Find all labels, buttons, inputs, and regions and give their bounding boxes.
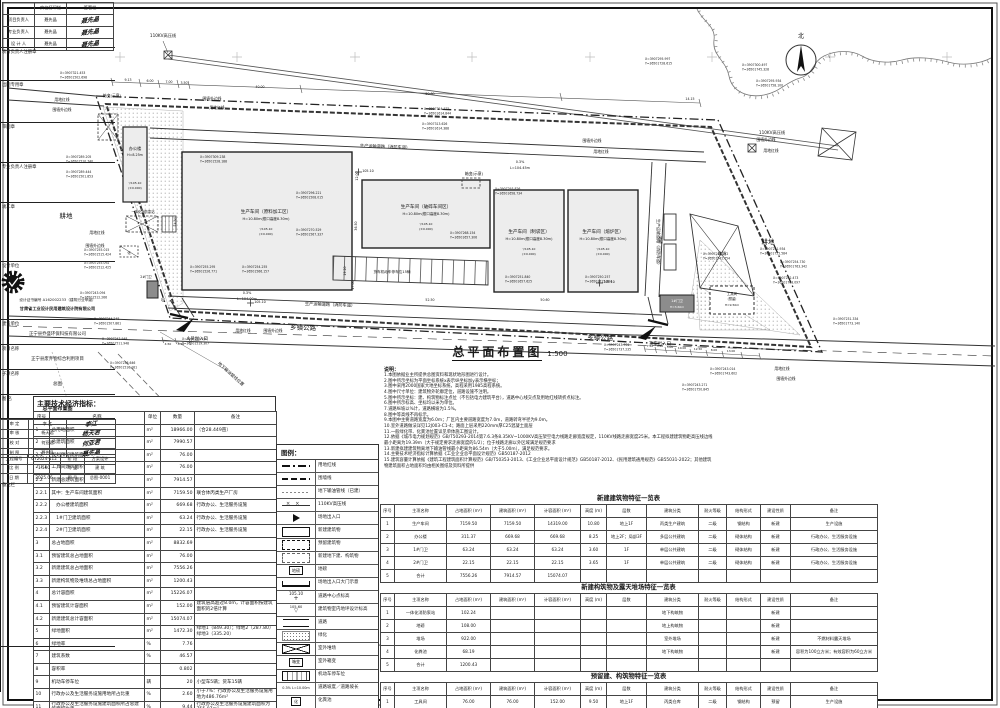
table-row: 31#门卫63.2463.2463.243.601F单层公共建筑二级砌体结构新建…: [381, 544, 878, 557]
legend-label: 场地出入口大门示意: [316, 581, 378, 586]
cell: [727, 570, 761, 583]
cell: 8832.69: [161, 537, 195, 550]
cell: 669.68: [535, 531, 581, 544]
column-header: 备注: [195, 412, 277, 425]
plan-label: 5.00: [667, 345, 674, 349]
cell: 地上2F；局部3F: [607, 531, 647, 544]
drawing-sheet: 耕地耕地乡镇公路乡镇公路生产车间（原料加工区）H=10.80m(檐口高度8.30…: [0, 0, 1000, 708]
design-institute-logo: [0, 269, 26, 295]
column-header: 高度 (m): [581, 683, 607, 696]
plan-label: H=10.80m(檐口高度8.30m): [506, 236, 554, 241]
cell: [581, 570, 607, 583]
cell: 新建: [761, 633, 791, 646]
cell: 3: [381, 544, 395, 557]
signature: 何亚君: [82, 439, 101, 448]
cell: 11: [34, 701, 50, 708]
sheet-name: 总平面布置图: [0, 405, 115, 412]
cell: [491, 646, 535, 659]
cell: m²: [145, 437, 161, 450]
sym-box-text-icon: 箱变: [289, 658, 303, 667]
coordinate-label: Y=36501614.388: [422, 127, 449, 131]
stamp-box-label: 项目负责人注册章: [2, 49, 36, 55]
sign-role: 项目负责人: [3, 15, 35, 27]
cell: [791, 659, 878, 672]
cell: m²: [145, 588, 161, 601]
column-header: 备注: [791, 505, 878, 518]
cell: 15226.07: [161, 588, 195, 601]
cell: 地下构筑物: [647, 646, 699, 659]
sign-header: 实名打印栏: [35, 3, 67, 15]
scale-value: 1:500: [28, 464, 61, 474]
plan-label: 8.00: [711, 348, 718, 352]
table-header-row: 序号主项名称占地面积 (m²)建筑面积 (m²)计容面积 (m²)高度 (m)层…: [381, 683, 878, 696]
coordinate-label: X=3907270.529: [296, 228, 321, 232]
plan-label: (±0.000): [419, 227, 432, 231]
column-header: 建筑面积 (m²): [491, 505, 535, 518]
plan-label: ▽105.10: [260, 227, 273, 231]
cell: m²: [145, 525, 161, 538]
cell: 102.24: [447, 607, 491, 620]
column-header: 建筑分类: [647, 683, 699, 696]
cell: [699, 646, 727, 659]
column-header: 高度 (m): [581, 505, 607, 518]
coordinate-label: X=3907254.255: [242, 265, 267, 269]
legend-item: 新建地下建、构筑物: [277, 552, 378, 565]
legend-symbol-icon: [277, 552, 316, 564]
legend-item: 机动车停车位: [277, 670, 378, 683]
column-header: 主项名称: [395, 594, 447, 607]
plan-label: 耕地: [762, 237, 776, 246]
coordinate-label: X=3907296.221: [296, 191, 321, 195]
cell: [761, 659, 791, 672]
column-header: 建筑分类: [647, 505, 699, 518]
note-line: 12.依据《城市电力规划规范》GB/T50293-2014第7.6.3条8.35…: [384, 435, 713, 446]
plan-label: 工具间: [727, 291, 738, 296]
cell: 1200.43: [161, 575, 195, 588]
sym-green-icon: [282, 631, 310, 641]
cell: 辆: [145, 676, 161, 689]
cell: 22.15: [447, 557, 491, 570]
cell: 建筑层高超过8.0m，计容面积按建筑面积的2倍计算: [195, 600, 277, 613]
field-label: 图 名: [2, 396, 12, 402]
cell: 7914.57: [161, 474, 195, 487]
legend-panel: 图例： 用地红线围墙线地下输油管线（已建）110KV高压线场地出入口新建建筑物预…: [276, 444, 379, 708]
plan-label: 3.50: [180, 81, 187, 85]
coordinate-label: Y=36501758.100: [756, 84, 783, 88]
plan-label: 地磅: [658, 236, 663, 244]
plan-label: 一体化消防泵站: [131, 209, 155, 214]
cell: 联合体丙类生产厂房: [195, 487, 277, 500]
coordinate-label: X=3907243.014: [710, 367, 735, 371]
plan-label: L=104.45m: [510, 166, 531, 170]
legend-symbol-icon: [277, 539, 316, 551]
cell: [195, 651, 277, 664]
field-label: 子项名称: [2, 371, 19, 377]
column-header: 耐火等级: [699, 594, 727, 607]
cell: 行政办公、生活服务设施: [195, 500, 277, 513]
cell: 1: [381, 696, 395, 708]
cell: [607, 607, 647, 620]
sym-rect-dashed-icon: [282, 540, 310, 550]
column-header: 层数: [607, 594, 647, 607]
sym-slope-icon: 0.3% L=10.00m: [282, 687, 309, 691]
signature: 聂先晶: [81, 16, 100, 25]
cell: 3.60: [581, 544, 607, 557]
signature-table: 实名打印栏 签署栏 项目负责人 聂先晶 聂先晶 专业负责人 聂先晶 聂先晶 设 …: [2, 2, 114, 51]
plan-label: (±0.000): [259, 232, 272, 236]
cell: 7.76: [161, 638, 195, 651]
cell: 砌体结构: [727, 531, 761, 544]
feature-table: 序号主项名称占地面积 (m²)建筑面积 (m²)计容面积 (m²)高度 (m)层…: [380, 682, 878, 708]
cell: [491, 633, 535, 646]
table-row: 11行政办公及生活服务设施建筑面积所占总建筑面积比重%9.44行政办公及生活服务…: [34, 701, 277, 708]
coordinate-label: X=3907314.122: [424, 107, 449, 111]
plan-label: 办公楼: [129, 145, 142, 152]
plan-label: （预留）: [726, 296, 739, 301]
legend-item: 0.3% L=10.00m道路坡度／道路坡长: [277, 683, 378, 696]
plan-label: 110KV高压线: [150, 32, 177, 39]
cell: 地上1F: [607, 518, 647, 531]
plan-label: 40.00: [255, 85, 264, 89]
cell: 小型车5辆；货车15辆: [195, 676, 277, 689]
cell: 15074.07: [161, 613, 195, 626]
cell: 22.15: [161, 525, 195, 538]
cell: 108.00: [447, 620, 491, 633]
coordinate-label: X=3907295.934: [756, 79, 781, 83]
cell: 行政办公及生活服务设施建筑面积为755.07m²: [195, 701, 277, 708]
sym-road-icon: [283, 619, 309, 627]
sym-box-text-icon: 地磅: [289, 566, 303, 575]
coordinate-label: X=3907300.497: [742, 63, 767, 67]
cell: 63.24: [535, 544, 581, 557]
plan-label: 2#门卫: [140, 274, 152, 279]
signature: 聂先晶: [81, 28, 100, 37]
coordinate-label: Y=36501566.157: [242, 270, 269, 274]
cell: [791, 620, 878, 633]
cell: [699, 633, 727, 646]
cell: 76.00: [491, 696, 535, 708]
plan-label: H=8.25m: [127, 153, 143, 157]
cell: [195, 449, 277, 462]
column-header: 序号: [381, 594, 395, 607]
legend-label: 室外堆场: [316, 647, 378, 652]
cell: 22.15: [491, 557, 535, 570]
cell: [727, 659, 761, 672]
column-header: 建设性质: [761, 505, 791, 518]
cell: 砌体结构: [727, 557, 761, 570]
cell: [195, 588, 277, 601]
cell: 4: [381, 646, 395, 659]
cell: 二级: [699, 518, 727, 531]
cell: 丙类生产建筑: [647, 518, 699, 531]
cell: 地上1F: [607, 696, 647, 708]
cell: 多层公共建筑: [647, 531, 699, 544]
cell: [581, 646, 607, 659]
legend-symbol-icon: 地磅: [277, 565, 316, 577]
field-label: 建设单位: [2, 321, 19, 327]
coordinate-label: Y=36501657.625: [505, 280, 532, 284]
cell: 1: [381, 607, 395, 620]
plan-label: 围墙外边线: [203, 96, 222, 101]
cell: 钢结构: [727, 518, 761, 531]
legend-item: 场地出入口大门示意: [277, 578, 378, 591]
feature-table-title: 预留建、构筑物特征一览表: [380, 672, 877, 682]
cell: 3: [381, 633, 395, 646]
cell: [581, 633, 607, 646]
sym-gate-icon: [282, 581, 310, 587]
cell: 二级: [699, 696, 727, 708]
cell: [607, 633, 647, 646]
legend-label: 化粪池: [316, 699, 378, 704]
legend-label: 110KV高压线: [316, 503, 378, 508]
drawing-scale: 1:500: [547, 350, 567, 358]
column-header: 建筑分类: [647, 594, 699, 607]
legend-symbol-icon: [277, 499, 316, 511]
plan-label: ▽105.10: [523, 247, 536, 251]
cell: 20: [161, 676, 195, 689]
cell: [491, 620, 535, 633]
cell: 7159.50: [447, 518, 491, 531]
legend-label: 道路: [316, 621, 378, 626]
column-header: 结构形式: [727, 505, 761, 518]
cell: m²: [145, 462, 161, 475]
cell: 922.00: [447, 633, 491, 646]
approval-table: 审 定李 江李江 审 核杨天君杨天君 校 对何亚君何亚君 制 图聂先晶聂先晶: [0, 419, 116, 458]
plan-label: (±0.000): [128, 186, 141, 190]
column-header: 层数: [607, 683, 647, 696]
legend-item: 预留建筑物: [277, 539, 378, 552]
legend-label: 地下输油管线（已建）: [316, 490, 378, 495]
plan-label: (±0.000): [522, 252, 535, 256]
cell: m²: [145, 563, 161, 576]
legend-label: 道路坡度／道路坡长: [316, 686, 378, 691]
approval-role: 审 定: [1, 420, 29, 430]
column-header: 单位: [145, 412, 161, 425]
plan-label: 105.10: [254, 300, 266, 304]
table-row: 1工具间76.0076.00152.009.50地上1F丙类仓库二级钢结构预留生…: [381, 696, 878, 708]
legend-symbol-icon: [277, 643, 316, 655]
gatehouse-1: [660, 295, 694, 312]
cell: 1: [381, 518, 395, 531]
coordinate-label: X=3907251.934: [760, 247, 785, 251]
drawing-title-text: 总平面布置图: [452, 345, 542, 361]
plan-label: 用地红线: [235, 328, 250, 333]
stamp-box-label: 出图专用章: [2, 82, 23, 88]
cell: [699, 620, 727, 633]
cell: 绿地1（849.30）；绿地2（287.80）绿地3（335.20）: [195, 626, 277, 639]
cell: [535, 646, 581, 659]
legend-title: 图例：: [277, 445, 378, 460]
plan-label: H=3.60m: [670, 305, 684, 309]
column-header: 占地面积 (m²): [447, 683, 491, 696]
cell: 7914.57: [491, 570, 535, 583]
coordinate-label: X=3907268.154: [450, 231, 475, 235]
cell: 1472.30: [161, 626, 195, 639]
cell: 地磅: [395, 620, 447, 633]
plan-label: H=9.50m: [725, 303, 739, 307]
feature-table-title: 新建构筑物及露天堆场特征一览表: [380, 583, 877, 593]
coordinate-label: X=3907293.826: [495, 187, 520, 191]
design-stage: 方案设计: [85, 455, 116, 465]
legend-symbol-icon: [277, 486, 316, 498]
cell: [195, 638, 277, 651]
approval-role: 校 对: [1, 439, 29, 449]
legend-item: 地下输油管线（已建）: [277, 486, 378, 499]
plan-label: 54.60: [173, 217, 178, 226]
plan-label: 12.50: [694, 347, 702, 351]
cell: 单层公共建筑: [647, 557, 699, 570]
coordinate-label: X=3907309.238: [200, 155, 225, 159]
plan-label: H=10.80m(檐口高度8.30m): [580, 236, 628, 241]
legend-symbol-icon: [277, 525, 316, 537]
legend-symbol-icon: 箱变: [277, 656, 316, 668]
legend-item: 室外堆场: [277, 643, 378, 656]
cell: 14319.00: [535, 518, 581, 531]
cell: [791, 607, 878, 620]
coordinate-label: Y=36501763.342: [780, 265, 807, 269]
column-header: 占地面积 (m²): [447, 594, 491, 607]
coordinate-label: X=3907242.473: [773, 276, 798, 280]
feature-table-title: 新建建筑物特征一览表: [380, 494, 877, 504]
cell: m²: [145, 474, 161, 487]
cell: 18966.00: [161, 424, 195, 437]
project-name: 正宁县废弃物综合利用项目: [0, 356, 115, 362]
plan-label: 用地红线: [774, 366, 789, 371]
legend-label: 预留建筑物: [316, 542, 378, 547]
legend-label: 新建地下建、构筑物: [316, 555, 378, 560]
coordinate-label: Y=36501508.015: [296, 196, 323, 200]
cell: 新建: [761, 518, 791, 531]
sym-xrect-icon: [282, 644, 310, 654]
sym-rect-solid-icon: [282, 527, 310, 537]
cell: 二级: [699, 544, 727, 557]
coordinate-label: Y=36501614.844: [424, 112, 451, 116]
cell: [195, 550, 277, 563]
plan-label: 90.60: [425, 92, 434, 96]
cell: [727, 646, 761, 659]
cell: m²: [145, 550, 161, 563]
table-row: 2地磅108.00地上构筑物新建: [381, 620, 878, 633]
plan-label: 箱变(示意): [465, 171, 484, 176]
field-label: 项目名称: [2, 346, 19, 352]
plan-label: 围墙外边线: [264, 328, 283, 333]
cell: 生产车间: [395, 518, 447, 531]
coordinate-label: X=3907250.257: [585, 275, 610, 279]
coordinate-label: Y=36501657.306: [450, 236, 477, 240]
cell: m²: [145, 500, 161, 513]
cell: 行政办公、生活服务设施: [791, 531, 878, 544]
column-header: 序号: [381, 683, 395, 696]
cell: 室外堆场: [647, 633, 699, 646]
cell: [195, 575, 277, 588]
cell: 二级: [699, 557, 727, 570]
cell: 新建: [761, 607, 791, 620]
legend-symbol-icon: [277, 578, 316, 590]
cell: 小于7%：行政办公及生活服务设施用地为486.76m²: [195, 689, 277, 702]
plan-label: 50.60: [540, 298, 549, 302]
cell: 2#门卫: [395, 557, 447, 570]
notes-title: 说明：: [384, 366, 713, 373]
column-header: 耐火等级: [699, 505, 727, 518]
sign-name: 聂先晶: [35, 27, 67, 39]
cell: 5: [381, 570, 395, 583]
sym-tri-level-icon: 105.60: [290, 606, 303, 615]
cell: 化粪池: [395, 646, 447, 659]
cell: [727, 620, 761, 633]
cell: m²: [145, 575, 161, 588]
plan-label: 1#门卫: [671, 298, 683, 303]
plan-label: 17.00: [351, 280, 355, 289]
coordinate-label: Y=36501528.188: [200, 160, 227, 164]
cell: [607, 620, 647, 633]
cell: [727, 633, 761, 646]
plan-label: 生产车间（熔炉区）: [582, 228, 623, 235]
cell: [699, 570, 727, 583]
table-row: 4化粪池68.19地下构筑物新建容积为100立方米；有效容积为60立方米: [381, 646, 878, 659]
column-header: 数量: [161, 412, 195, 425]
cell: 一体化消防泵站: [395, 607, 447, 620]
sym-cross-elev-icon: 105.10: [289, 592, 303, 602]
feature-table: 序号主项名称占地面积 (m²)建筑面积 (m²)计容面积 (m²)高度 (m)层…: [380, 504, 878, 583]
coordinate-label: X=3907295.997: [645, 57, 670, 61]
stamp-box-label: 竣工章: [2, 204, 15, 210]
note-line: 15.建筑容量计算依据《建筑工程建筑面积计算规范》GB/T50353-2013、…: [384, 458, 713, 469]
legend-symbol-icon: [277, 617, 316, 629]
plan-label: 用地红线: [763, 148, 778, 153]
plan-label: 13.00: [727, 349, 735, 353]
legend-symbol-icon: [277, 473, 316, 485]
cell: 二级: [699, 531, 727, 544]
drawing-title: 总平面布置图1:500: [395, 341, 625, 360]
column-header: 主项名称: [395, 683, 447, 696]
cell: 22.15: [535, 557, 581, 570]
coordinate-label: Y=36501763.097: [773, 281, 800, 285]
cell: 新建: [761, 557, 791, 570]
sign-header: 签署栏: [67, 3, 114, 15]
plan-label: ▽105.10: [129, 181, 142, 185]
legend-label: 地磅: [316, 568, 378, 573]
coordinate-label: X=3907251.840: [505, 275, 530, 279]
stamp-box-label: 专业负责人注册章: [2, 164, 36, 170]
notes-panel: 说明： 1.本图依据业主所提供总图资料和现状地形图进行设计。2.图中所示坐标为平…: [384, 366, 713, 469]
legend-item: 箱变室外箱变: [277, 656, 378, 669]
cell: %: [145, 651, 161, 664]
sym-box-text-icon: 化: [291, 697, 301, 706]
column-header: 结构形式: [727, 594, 761, 607]
cell: 预留: [761, 696, 791, 708]
cell: 行政办公、生活服务设施: [195, 512, 277, 525]
sym-park-icon: [282, 671, 310, 681]
cell: 10.80: [581, 518, 607, 531]
approval-role: 审 核: [1, 429, 29, 439]
cell: [581, 659, 607, 672]
feature-tables: 新建建筑物特征一览表序号主项名称占地面积 (m²)建筑面积 (m²)计容面积 (…: [380, 494, 877, 708]
cell: 63.24: [447, 544, 491, 557]
cell: 合计: [395, 570, 447, 583]
plan-label: 52.50: [425, 298, 434, 302]
cell: 办公楼: [395, 531, 447, 544]
table-row: 3堆场922.00室外堆场新建不燃材料露天堆场: [381, 633, 878, 646]
plan-label: 7.50: [647, 344, 654, 348]
legend-symbol-icon: [277, 630, 316, 642]
plan-label: H=10.80m(檐口高度8.30m): [403, 211, 451, 216]
discipline: 建 筑: [85, 464, 116, 474]
cell: 单层公共建筑: [647, 544, 699, 557]
legend-item: 110KV高压线: [277, 499, 378, 512]
cell: m²: [145, 487, 161, 500]
legend-symbol-icon: [277, 670, 316, 682]
plan-label: 9.13: [124, 78, 131, 82]
